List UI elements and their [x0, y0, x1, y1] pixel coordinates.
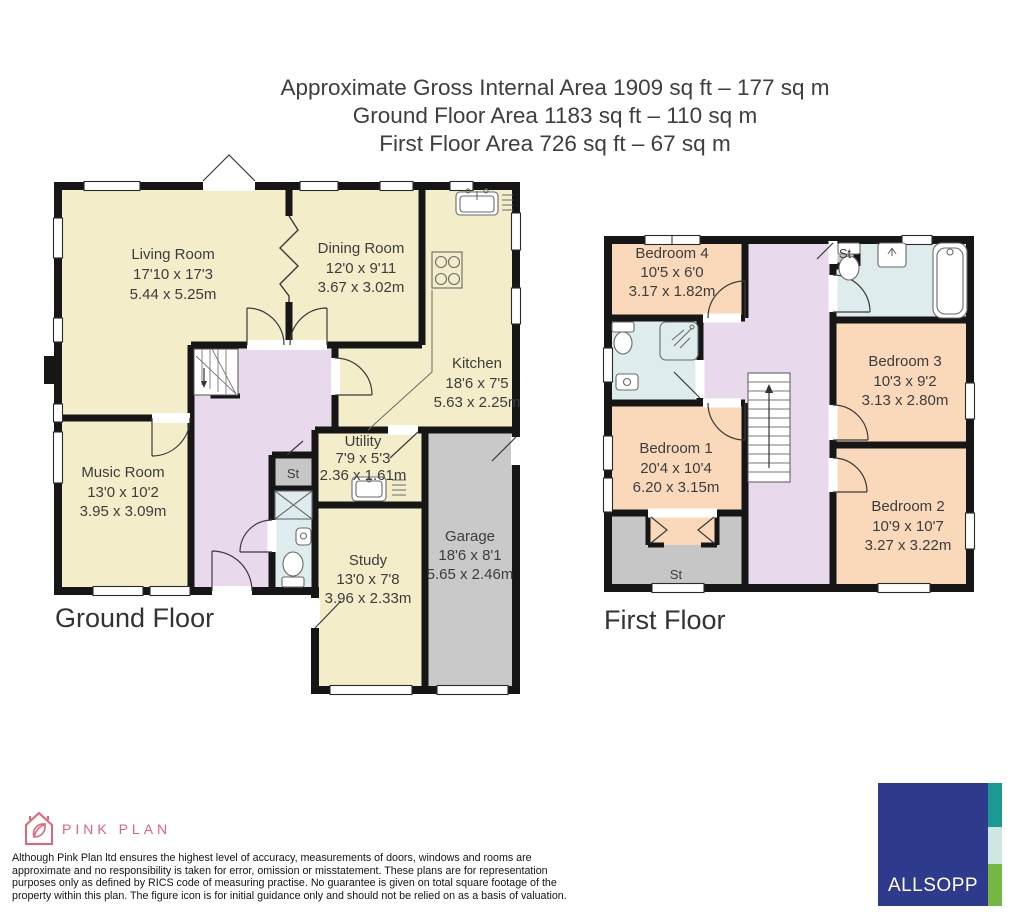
kitchen-sink-icon	[456, 189, 498, 215]
ground-basin-icon	[296, 528, 311, 545]
disclaimer-line: approximate and no responsibility is tak…	[12, 865, 592, 878]
hob-icon	[432, 252, 462, 288]
ensuite-shower-icon	[660, 322, 698, 360]
bedroom2-area	[833, 445, 970, 588]
living-room-metric: 5.44 x 5.25m	[130, 286, 217, 303]
kitchen-imperial: 18'6 x 7'5	[445, 375, 508, 392]
first-floor-title: First Floor	[604, 605, 726, 635]
pink-plan-logo	[22, 810, 56, 853]
bedroom2-label: Bedroom 2	[871, 498, 944, 515]
kitchen-metric: 5.63 x 2.25m	[434, 394, 521, 411]
living-room-label: Living Room	[131, 246, 214, 263]
allsopp-logo: ALLSOPP	[878, 782, 1002, 907]
ensuite-basin-icon	[616, 374, 638, 390]
stairs-up-icon	[748, 373, 790, 482]
study-label: Study	[349, 552, 388, 569]
disclaimer-text: Although Pink Plan ltd ensures the highe…	[12, 852, 592, 902]
bathroom-storage-label: St	[839, 246, 852, 261]
bedroom4-label: Bedroom 4	[635, 245, 708, 262]
allsopp-logo-square: ALLSOPP	[878, 783, 988, 906]
first-floor-plan: Bedroom 4 10'5 x 6'0 3.17 x 1.82m Bedroo…	[604, 236, 975, 636]
ground-toilet-icon	[282, 552, 304, 587]
bedroom2-metric: 3.27 x 3.22m	[865, 537, 952, 554]
disclaimer-line: purposes only as defined by RICS code of…	[12, 877, 592, 890]
bathroom-basin-icon	[878, 243, 906, 267]
kitchen-label: Kitchen	[452, 355, 502, 372]
ground-floor-title: Ground Floor	[55, 603, 214, 633]
bedroom1-alcove	[648, 513, 717, 545]
disclaimer-line: property within this plan. The figure ic…	[12, 890, 592, 903]
bedroom1-storage-label: St	[670, 567, 683, 582]
utility-metric: 2.36 x 1.61m	[320, 467, 407, 484]
bedroom2-imperial: 10'9 x 10'7	[872, 518, 944, 535]
bedroom1-label: Bedroom 1	[639, 440, 712, 457]
dining-room-metric: 3.67 x 3.02m	[318, 279, 405, 296]
bedroom3-label: Bedroom 3	[868, 353, 941, 370]
music-room-imperial: 13'0 x 10'2	[87, 484, 159, 501]
study-metric: 3.96 x 2.33m	[325, 590, 412, 607]
floorplan-page: Approximate Gross Internal Area 1909 sq …	[0, 0, 1022, 913]
allsopp-wordmark: ALLSOPP	[878, 875, 988, 897]
garage-metric: 5.65 x 2.46m	[427, 566, 514, 583]
ground-floor-plan: Living Room 17'10 x 17'3 5.44 x 5.25m Di…	[44, 155, 521, 695]
bedroom3-metric: 3.13 x 2.80m	[862, 392, 949, 409]
chimney-breast	[44, 356, 59, 384]
garage-imperial: 18'6 x 8'1	[438, 547, 501, 564]
ground-shower-icon	[275, 491, 312, 519]
bedroom4-metric: 3.17 x 1.82m	[629, 283, 716, 300]
allsopp-strip-pale	[988, 827, 1002, 864]
bedroom3-imperial: 10'3 x 9'2	[873, 373, 936, 390]
ensuite-toilet-icon	[612, 322, 634, 354]
bedroom1-imperial: 20'4 x 10'4	[640, 460, 712, 477]
study-imperial: 13'0 x 7'8	[336, 571, 399, 588]
allsopp-strip-teal	[988, 783, 1002, 827]
garage-label: Garage	[445, 528, 495, 545]
dining-room-label: Dining Room	[318, 240, 405, 257]
disclaimer-line: Although Pink Plan ltd ensures the highe…	[12, 852, 592, 865]
floor-plan-canvas: Living Room 17'10 x 17'3 5.44 x 5.25m Di…	[0, 0, 1022, 760]
landing-corridor-area	[700, 318, 745, 403]
music-room-metric: 3.95 x 3.09m	[80, 503, 167, 520]
bedroom1-area	[608, 403, 745, 513]
pink-plan-house-icon	[22, 810, 56, 848]
bathtub-icon	[933, 243, 967, 318]
dining-room-imperial: 12'0 x 9'11	[326, 260, 397, 277]
allsopp-logo-strip	[988, 783, 1002, 906]
bedroom4-imperial: 10'5 x 6'0	[640, 264, 703, 281]
ground-storage-label: St	[287, 466, 300, 481]
allsopp-strip-green	[988, 864, 1002, 906]
utility-label: Utility	[345, 433, 382, 450]
utility-imperial: 7'9 x 5'3	[336, 450, 391, 467]
living-room-imperial: 17'10 x 17'3	[133, 266, 213, 283]
pink-plan-wordmark: PINK PLAN	[62, 821, 171, 837]
bedroom1-metric: 6.20 x 3.15m	[633, 479, 720, 496]
music-room-label: Music Room	[81, 464, 164, 481]
stairs-icon	[194, 349, 238, 395]
